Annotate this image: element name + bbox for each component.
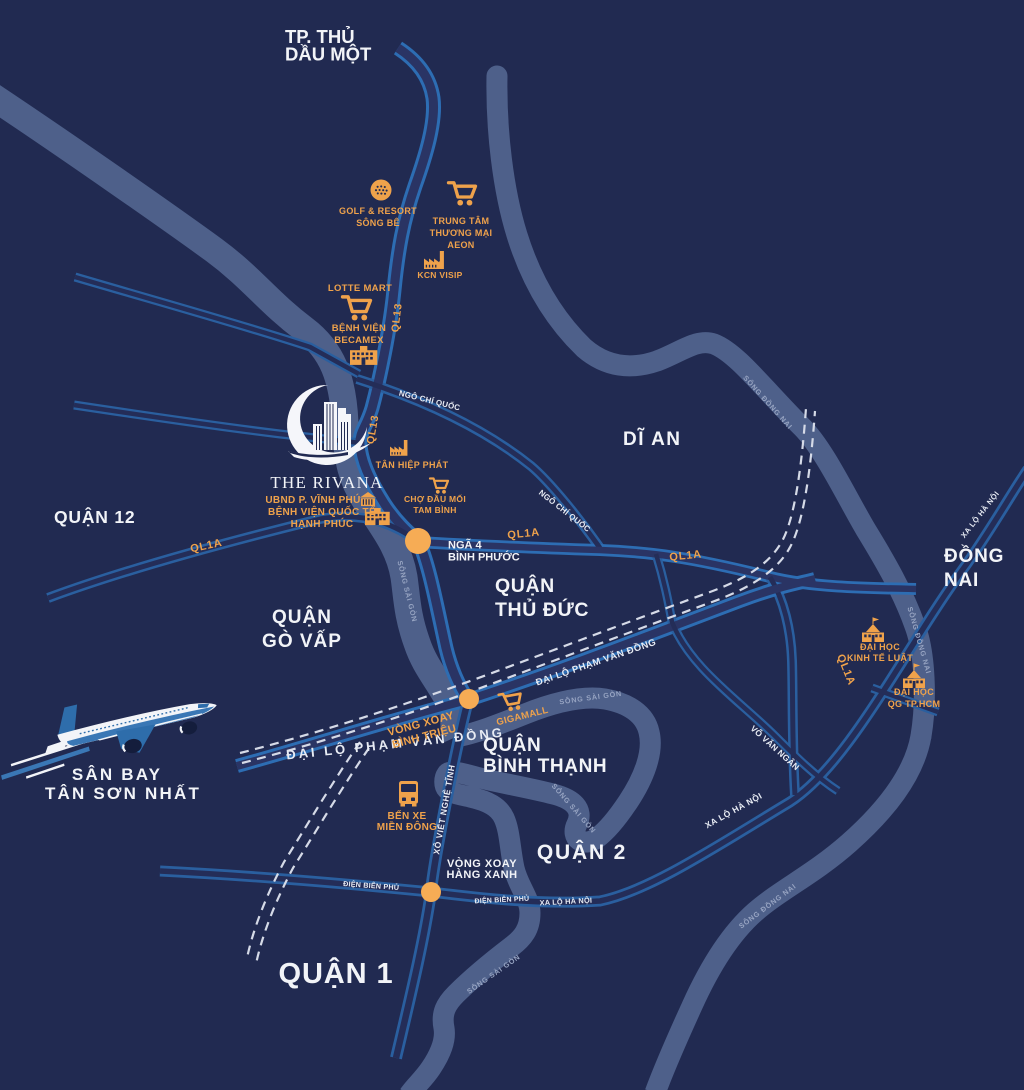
svg-text:ĐẠI HỌC: ĐẠI HỌC (894, 687, 934, 697)
svg-text:UBND P. VĨNH PHÚ: UBND P. VĨNH PHÚ (265, 493, 360, 506)
svg-text:LOTTE MART: LOTTE MART (328, 283, 392, 294)
svg-text:THE RIVANA: THE RIVANA (270, 473, 383, 492)
svg-text:TÂN SƠN NHẤT: TÂN SƠN NHẤT (45, 784, 201, 803)
svg-text:QUẬN: QUẬN (272, 606, 332, 628)
svg-text:BỆNH VIỆN: BỆNH VIỆN (332, 322, 386, 334)
svg-text:QUẬN 1: QUẬN 1 (279, 956, 394, 990)
svg-text:HÀNG XANH: HÀNG XANH (446, 868, 517, 881)
svg-text:CHỢ ĐẦU MỐI: CHỢ ĐẦU MỐI (404, 493, 466, 504)
svg-text:AEON: AEON (447, 240, 474, 250)
svg-text:QUẬN: QUẬN (495, 573, 555, 597)
svg-text:QUẬN 12: QUẬN 12 (54, 506, 135, 527)
svg-text:BỆNH VIỆN QUỐC TẾ: BỆNH VIỆN QUỐC TẾ (268, 504, 376, 518)
svg-text:BECAMEX: BECAMEX (334, 335, 384, 346)
svg-text:TAM BÌNH: TAM BÌNH (413, 505, 456, 515)
svg-text:TRUNG TÂM: TRUNG TÂM (433, 215, 490, 226)
svg-text:GÒ VẤP: GÒ VẤP (262, 630, 342, 652)
svg-text:QUẬN 2: QUẬN 2 (537, 840, 627, 864)
svg-text:SÔNG ĐỒNG NAI: SÔNG ĐỒNG NAI (736, 881, 798, 931)
svg-text:ĐẠI HỌC: ĐẠI HỌC (860, 642, 900, 652)
svg-text:MIỀN ĐÔNG: MIỀN ĐÔNG (377, 820, 437, 833)
svg-text:DĨ AN: DĨ AN (623, 428, 682, 450)
svg-text:BẾN XE: BẾN XE (387, 809, 426, 822)
svg-text:QL1A: QL1A (507, 526, 541, 541)
svg-text:THƯƠNG MẠI: THƯƠNG MẠI (430, 228, 493, 238)
svg-text:THỦ ĐỨC: THỦ ĐỨC (495, 597, 589, 621)
svg-text:QG TP.HCM: QG TP.HCM (888, 699, 941, 709)
svg-text:NGÃ 4: NGÃ 4 (448, 539, 483, 552)
svg-text:HẠNH PHÚC: HẠNH PHÚC (291, 517, 354, 530)
svg-text:BÌNH THẠNH: BÌNH THẠNH (483, 755, 607, 777)
svg-text:QL13: QL13 (389, 302, 405, 333)
svg-text:SÔNG BÊ: SÔNG BÊ (356, 217, 400, 228)
svg-text:BÌNH PHƯỚC: BÌNH PHƯỚC (448, 551, 520, 564)
svg-text:DẦU MỘT: DẦU MỘT (285, 44, 372, 65)
svg-text:KCN VISIP: KCN VISIP (417, 270, 462, 280)
svg-text:ĐỒNG: ĐỒNG (944, 545, 1004, 567)
svg-text:SÂN BAY: SÂN BAY (72, 765, 162, 784)
svg-text:NAI: NAI (944, 570, 979, 591)
svg-text:KINH TẾ LUẬT: KINH TẾ LUẬT (847, 652, 913, 663)
svg-text:TÂN HIỆP PHÁT: TÂN HIỆP PHÁT (376, 459, 449, 470)
svg-text:GOLF & RESORT: GOLF & RESORT (339, 206, 417, 216)
